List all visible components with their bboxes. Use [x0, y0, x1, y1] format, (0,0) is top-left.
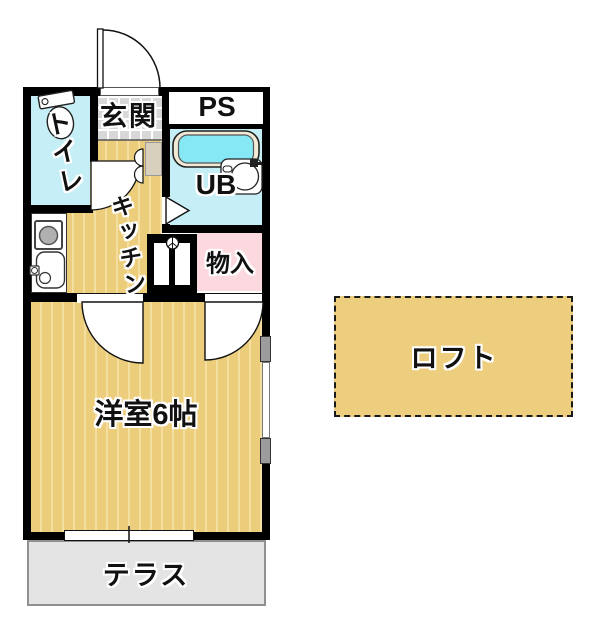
label-pipe-space: PS: [198, 91, 235, 123]
label-unit-bath: UB: [196, 169, 236, 201]
label-western-room: 洋室6帖: [94, 391, 197, 433]
washer-lid-icon: [167, 237, 179, 249]
room-door-swing-left-icon: [82, 302, 143, 363]
room-door-swing-right-icon: [205, 302, 263, 360]
label-loft: ロフト: [411, 337, 498, 376]
floorplan-page: { "title": "1K apartment floor plan", "r…: [0, 0, 600, 633]
label-entrance: 玄関: [100, 95, 158, 134]
label-storage: 物入: [206, 244, 254, 279]
fixtures-overlay: [0, 0, 600, 633]
sink-icon: [30, 252, 65, 288]
label-terrace: テラス: [103, 554, 189, 593]
entrance-door-swing-icon: [98, 29, 161, 88]
bath-door-icon: [166, 197, 189, 224]
stove-icon: [35, 221, 62, 249]
